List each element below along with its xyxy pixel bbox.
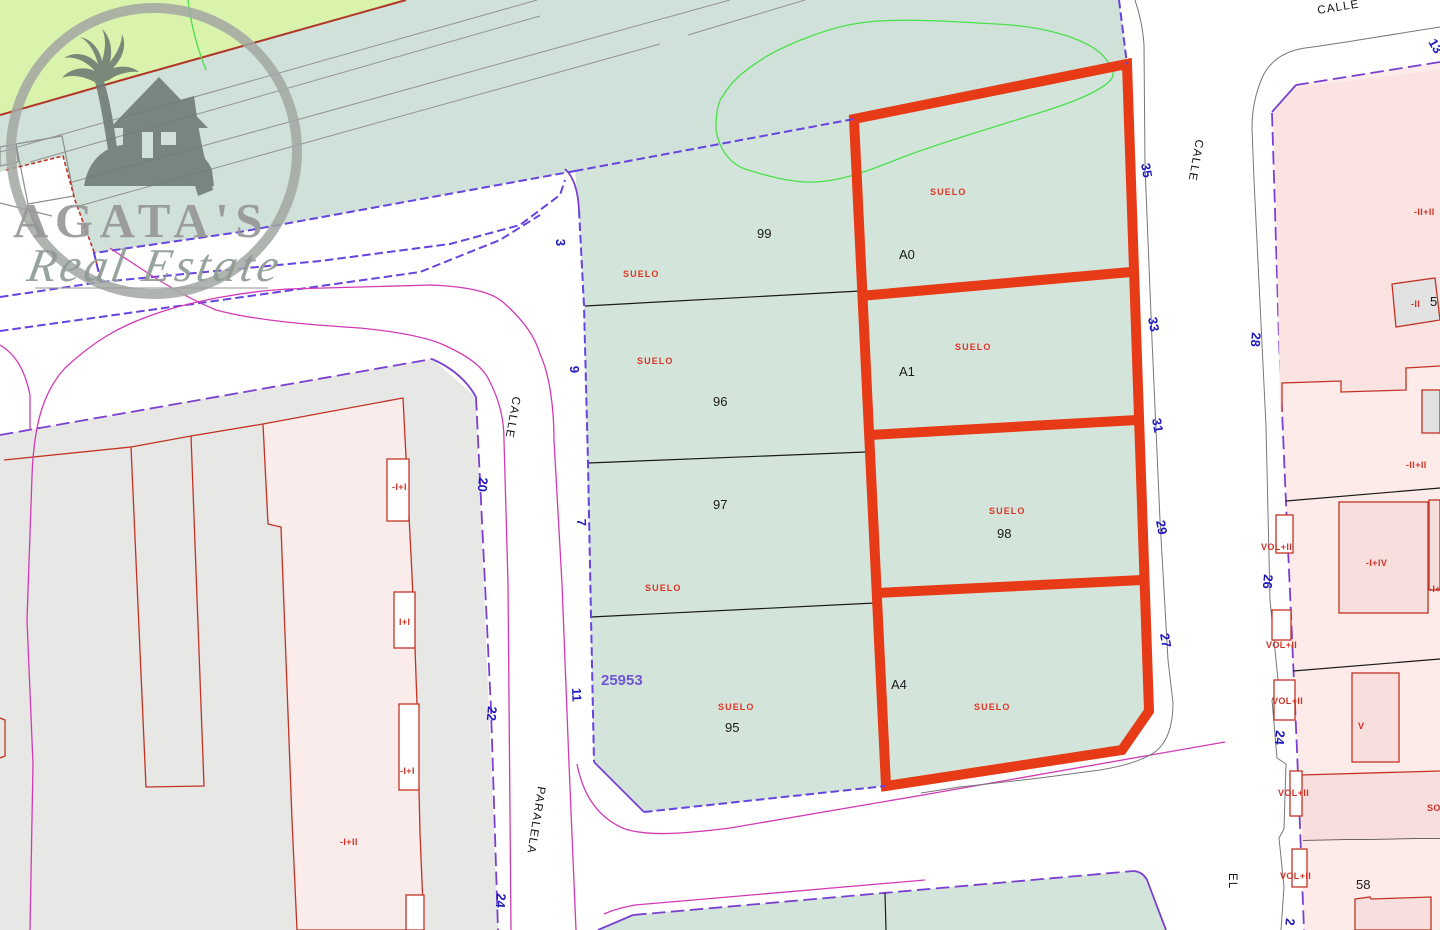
svg-text:28: 28 xyxy=(1248,332,1264,348)
svg-text:9: 9 xyxy=(567,366,582,374)
svg-text:27: 27 xyxy=(1157,632,1174,649)
svg-text:95: 95 xyxy=(725,720,739,735)
svg-text:SUELO: SUELO xyxy=(718,702,755,712)
svg-text:7: 7 xyxy=(574,519,589,527)
svg-text:96: 96 xyxy=(713,394,727,409)
svg-text:-I+I: -I+I xyxy=(392,482,407,492)
svg-text:EL: EL xyxy=(1226,873,1238,889)
svg-text:20: 20 xyxy=(475,477,491,493)
svg-text:25953: 25953 xyxy=(601,672,643,689)
svg-text:33: 33 xyxy=(1145,316,1162,333)
svg-text:VOL+II: VOL+II xyxy=(1280,871,1311,881)
svg-text:24: 24 xyxy=(493,893,509,909)
svg-text:99: 99 xyxy=(757,226,771,241)
svg-text:VOL+II: VOL+II xyxy=(1266,640,1297,650)
svg-text:-I+II: -I+II xyxy=(340,837,358,847)
svg-text:3: 3 xyxy=(553,239,568,247)
svg-text:97: 97 xyxy=(713,497,727,512)
svg-text:VOL+II: VOL+II xyxy=(1278,788,1309,798)
svg-text:SUELO: SUELO xyxy=(974,702,1011,712)
svg-text:11: 11 xyxy=(569,688,584,702)
svg-text:-I+IV: -I+IV xyxy=(1366,558,1387,568)
svg-text:V: V xyxy=(1358,721,1364,731)
svg-text:31: 31 xyxy=(1149,417,1166,434)
svg-text:SUELO: SUELO xyxy=(955,342,992,352)
svg-text:-II+II: -II+II xyxy=(1414,207,1435,217)
svg-text:A1: A1 xyxy=(899,364,915,379)
svg-text:-I+I: -I+I xyxy=(400,766,415,776)
svg-text:2: 2 xyxy=(1282,918,1298,927)
svg-text:22: 22 xyxy=(484,706,500,722)
svg-text:-II: -II xyxy=(1411,299,1420,309)
svg-text:VOL+II: VOL+II xyxy=(1261,542,1292,552)
svg-text:58: 58 xyxy=(1356,877,1370,892)
svg-text:A4: A4 xyxy=(891,677,907,692)
svg-text:24: 24 xyxy=(1272,730,1288,746)
svg-text:SUELO: SUELO xyxy=(930,187,967,197)
svg-text:-II+II: -II+II xyxy=(1406,460,1427,470)
svg-text:SUELO: SUELO xyxy=(623,269,660,279)
svg-text:VOL+II: VOL+II xyxy=(1272,696,1303,706)
svg-text:5: 5 xyxy=(1430,294,1437,309)
svg-text:35: 35 xyxy=(1138,162,1155,179)
svg-text:Real Estate: Real Estate xyxy=(23,240,287,292)
svg-text:SUELO: SUELO xyxy=(645,583,682,593)
svg-text:SUELO: SUELO xyxy=(989,506,1026,516)
svg-text:SO: SO xyxy=(1427,803,1440,813)
svg-text:29: 29 xyxy=(1153,519,1170,536)
svg-text:98: 98 xyxy=(997,526,1011,541)
svg-text:SUELO: SUELO xyxy=(637,356,674,366)
svg-text:A0: A0 xyxy=(899,247,915,262)
svg-text:I+I: I+I xyxy=(399,617,410,627)
svg-text:26: 26 xyxy=(1260,574,1276,590)
svg-text:-I+: -I+ xyxy=(1429,584,1440,594)
